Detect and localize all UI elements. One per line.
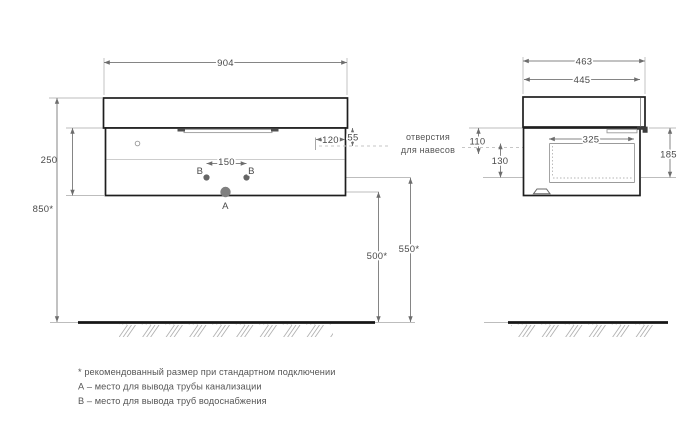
dim-label-body-depth: 445: [574, 75, 591, 86]
dim-label-hanger-top-offset: 110: [469, 137, 485, 148]
wall-bracket: [534, 189, 551, 194]
footnote-recommended-size: * рекомендованный размер при стандартном…: [78, 367, 335, 377]
washbasin-side: [523, 97, 645, 127]
hanger-hole-left: [135, 141, 140, 146]
handle-end-cap: [178, 129, 186, 132]
dim-label-hanger-offset-x: 120: [322, 135, 339, 146]
dim-label-drawer-depth: 325: [583, 135, 600, 146]
dim-label-hanger-offset-y: 55: [347, 133, 358, 144]
front-view: 904 250 850* 120 55 150 550* 500* B B А: [33, 58, 420, 322]
dim-label-mount-height: 850*: [33, 204, 54, 215]
floor: [50, 323, 668, 338]
dim-label-overall-depth: 463: [576, 57, 593, 68]
dim-label-cabinet-height: 250: [41, 155, 58, 166]
water-outlet-point-left: [203, 174, 209, 180]
dim-label-water-spacing: 150: [218, 157, 235, 168]
dim-label-width: 904: [217, 58, 234, 69]
hanger-note-line1: отверстия: [406, 132, 450, 142]
point-b-right-label: B: [248, 166, 255, 177]
handle-end-cap: [271, 129, 279, 132]
floor-hatching-right: [511, 325, 657, 338]
technical-drawing-page: 904 250 850* 120 55 150 550* 500* B B А …: [0, 0, 700, 430]
footnotes: * рекомендованный размер при стандартном…: [78, 367, 335, 406]
vanity-dimension-drawing: 904 250 850* 120 55 150 550* 500* B B А …: [0, 0, 700, 430]
handle-groove: [184, 129, 272, 132]
washbasin-front: [104, 98, 348, 128]
side-view: 463 445 325 110 130 185: [469, 57, 677, 196]
dim-label-drawer-height: 185: [660, 150, 677, 161]
handle-groove-side: [607, 129, 637, 132]
floor-hatching-left: [119, 325, 333, 338]
footnote-point-b: В – место для вывода труб водоснабжения: [78, 396, 267, 406]
point-b-left-label: B: [197, 166, 204, 177]
dim-label-hanger-mid-offset: 130: [492, 156, 509, 167]
point-a-label: А: [222, 201, 229, 212]
drain-outlet-point: [220, 187, 230, 197]
dim-label-water-height: 550*: [399, 244, 420, 255]
footnote-point-a: А – место для вывода трубы канализации: [78, 382, 262, 392]
dim-label-drain-height: 500*: [367, 251, 388, 262]
hanger-note-line2: для навесов: [401, 145, 455, 155]
